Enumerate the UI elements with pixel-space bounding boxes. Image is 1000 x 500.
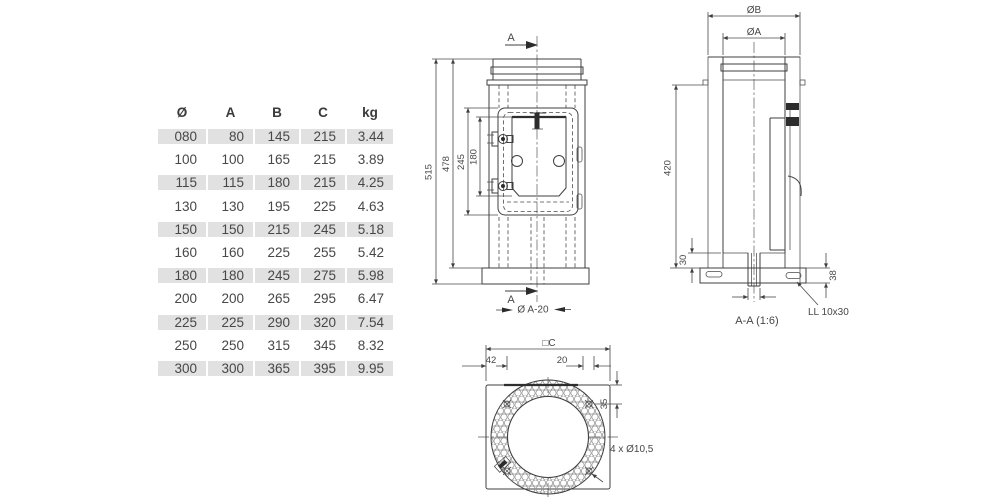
- table-row: 1151151802154.25: [158, 171, 395, 194]
- table-cell: 395: [301, 361, 345, 376]
- door-knob-left: [512, 156, 523, 167]
- dim-420-label: 420: [663, 160, 674, 176]
- table-body: 080801452153.441001001652153.89115115180…: [158, 125, 395, 380]
- latch-section-bottom: [786, 117, 799, 126]
- col-header-c: C: [301, 105, 345, 120]
- table-cell: 180: [158, 268, 206, 283]
- plate-thickness-dimension: 38: [806, 253, 839, 298]
- dim-38-label: 38: [828, 270, 839, 281]
- dim-478-label: 478: [441, 156, 452, 172]
- col-header-a: A: [208, 105, 253, 120]
- dimension-table: Ø A B C kg 080801452153.441001001652153.…: [158, 100, 395, 380]
- table-cell: 300: [208, 361, 253, 376]
- dim-180-label: 180: [469, 149, 480, 165]
- table-row: 080801452153.44: [158, 125, 395, 148]
- table-cell: 4.63: [347, 199, 393, 214]
- table-cell: 290: [255, 315, 299, 330]
- table-cell: 3.89: [347, 152, 393, 167]
- insulation-right: [785, 57, 800, 268]
- collar-tick-right: [800, 80, 805, 85]
- table-row: 1001001652153.89: [158, 148, 395, 171]
- col-header-kg: kg: [347, 105, 393, 120]
- height-dimension: 420: [663, 85, 704, 268]
- door-latch-top: [487, 132, 513, 146]
- table-cell: 345: [301, 338, 345, 353]
- table-cell: 200: [208, 291, 253, 306]
- dim-42-label: 42: [486, 355, 497, 366]
- section-caption: A-A (1:6): [735, 315, 778, 327]
- section-arrow-bottom: A: [505, 287, 538, 306]
- table-row: 1601602252555.42: [158, 241, 395, 264]
- table-cell: 245: [301, 222, 345, 237]
- access-door: [498, 108, 582, 215]
- door-section: [770, 103, 801, 250]
- table-cell: 315: [255, 338, 299, 353]
- table-cell: 225: [208, 315, 253, 330]
- hole-top-right: [585, 400, 593, 408]
- table-cell: 7.54: [347, 315, 393, 330]
- section-label-bottom: A: [507, 294, 515, 306]
- table-cell: 80: [208, 129, 253, 144]
- table-cell: 6.47: [347, 291, 393, 306]
- table-cell: 180: [208, 268, 253, 283]
- front-view: 515 478 245 180 A A Ø: [424, 32, 590, 316]
- table-cell: 160: [158, 245, 206, 260]
- table-cell: 150: [158, 222, 206, 237]
- offset-42-dimension: 42: [462, 355, 507, 370]
- slot-right: [786, 273, 801, 279]
- table-row: 2002002652956.47: [158, 287, 395, 310]
- table-cell: 8.32: [347, 338, 393, 353]
- dim-35-label: 35: [599, 399, 610, 410]
- table-cell: 265: [255, 291, 299, 306]
- table-cell: 115: [158, 175, 206, 190]
- table-row: 1801802452755.98: [158, 264, 395, 287]
- col-header-diameter: Ø: [158, 105, 206, 120]
- offset-20-dimension: 20: [557, 355, 611, 370]
- square-dimension: □C: [486, 338, 610, 381]
- dim-515-label: 515: [424, 164, 435, 180]
- table-cell: 275: [301, 268, 345, 283]
- door-latch-bottom: [487, 179, 513, 193]
- table-cell: 130: [158, 199, 206, 214]
- table-cell: 225: [255, 245, 299, 260]
- table-cell: 215: [301, 175, 345, 190]
- table-cell: 145: [255, 129, 299, 144]
- holes-label: 4 x Ø10,5: [610, 444, 654, 455]
- dim-30-label: 30: [678, 255, 689, 266]
- dim-20-label: 20: [557, 355, 568, 366]
- table-row: 1301301952254.63: [158, 195, 395, 218]
- hole-top-left: [503, 400, 511, 408]
- dim-outer-dia-label: ØB: [747, 5, 762, 16]
- table-cell: 225: [158, 315, 206, 330]
- table-cell: 115: [208, 175, 253, 190]
- table-row: 3003003653959.95: [158, 357, 395, 380]
- table-cell: 320: [301, 315, 345, 330]
- table-cell: 195: [255, 199, 299, 214]
- drain-dimension: Ø A-20: [496, 305, 571, 316]
- top-view: □C 42 20 35: [462, 338, 654, 497]
- hole-bottom-right: [585, 467, 593, 475]
- bottom-insulation-right: [760, 253, 785, 268]
- table-cell: 150: [208, 222, 253, 237]
- table-cell: 365: [255, 361, 299, 376]
- dim-square-label: □C: [542, 338, 555, 349]
- table-cell: 215: [301, 152, 345, 167]
- slot-leader: LL 10x30: [797, 282, 849, 318]
- locking-pin: [530, 113, 546, 129]
- bottom-insulation-left: [723, 253, 748, 268]
- table-cell: 100: [208, 152, 253, 167]
- table-cell: 5.42: [347, 245, 393, 260]
- slot-label: LL 10x30: [808, 307, 849, 318]
- insulation-left: [708, 57, 723, 268]
- base-plate-section: [700, 268, 806, 283]
- table-cell: 300: [158, 361, 206, 376]
- table-cell: 215: [301, 129, 345, 144]
- table-cell: 5.98: [347, 268, 393, 283]
- base-plate-front: [482, 268, 589, 284]
- latch-section-top: [786, 103, 799, 110]
- table-cell: 255: [301, 245, 345, 260]
- section-arrow-top: A: [505, 32, 538, 49]
- section-view: ØB ØA 420 30: [663, 5, 850, 327]
- table-cell: 080: [158, 129, 206, 144]
- table-cell: 250: [208, 338, 253, 353]
- table-cell: 180: [255, 175, 299, 190]
- table-row: 2502503153458.32: [158, 334, 395, 357]
- spec-sheet: Ø A B C kg 080801452153.441001001652153.…: [0, 0, 1000, 500]
- flue-bore: [508, 397, 589, 478]
- table-cell: 100: [158, 152, 206, 167]
- col-header-b: B: [255, 105, 299, 120]
- table-row: 2252252903207.54: [158, 311, 395, 334]
- table-row: 1501502152455.18: [158, 218, 395, 241]
- table-cell: 3.44: [347, 129, 393, 144]
- table-cell: 9.95: [347, 361, 393, 376]
- table-cell: 165: [255, 152, 299, 167]
- dim-drain-label: Ø A-20: [517, 305, 549, 316]
- table-cell: 5.18: [347, 222, 393, 237]
- table-cell: 245: [255, 268, 299, 283]
- slot-left: [706, 272, 722, 278]
- section-label-top: A: [507, 32, 515, 44]
- door-knob-right: [554, 156, 565, 167]
- table-cell: 215: [255, 222, 299, 237]
- dim-inner-dia-label: ØA: [747, 27, 762, 38]
- table-cell: 160: [208, 245, 253, 260]
- collar-tick-left: [703, 80, 708, 85]
- table-cell: 295: [301, 291, 345, 306]
- table-cell: 225: [301, 199, 345, 214]
- table-header-row: Ø A B C kg: [158, 100, 395, 125]
- table-cell: 130: [208, 199, 253, 214]
- table-cell: 250: [158, 338, 206, 353]
- technical-drawing: 515 478 245 180 A A Ø: [0, 0, 1000, 500]
- table-cell: 4.25: [347, 175, 393, 190]
- dim-245-label: 245: [456, 154, 467, 170]
- table-cell: 200: [158, 291, 206, 306]
